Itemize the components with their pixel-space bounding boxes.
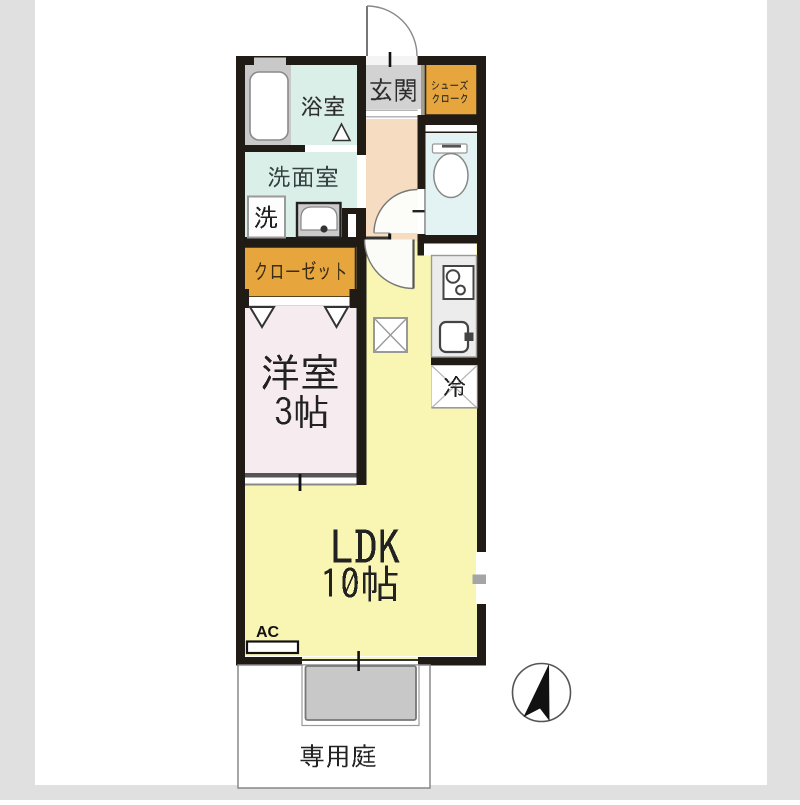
svg-text:AC: AC (256, 624, 280, 641)
